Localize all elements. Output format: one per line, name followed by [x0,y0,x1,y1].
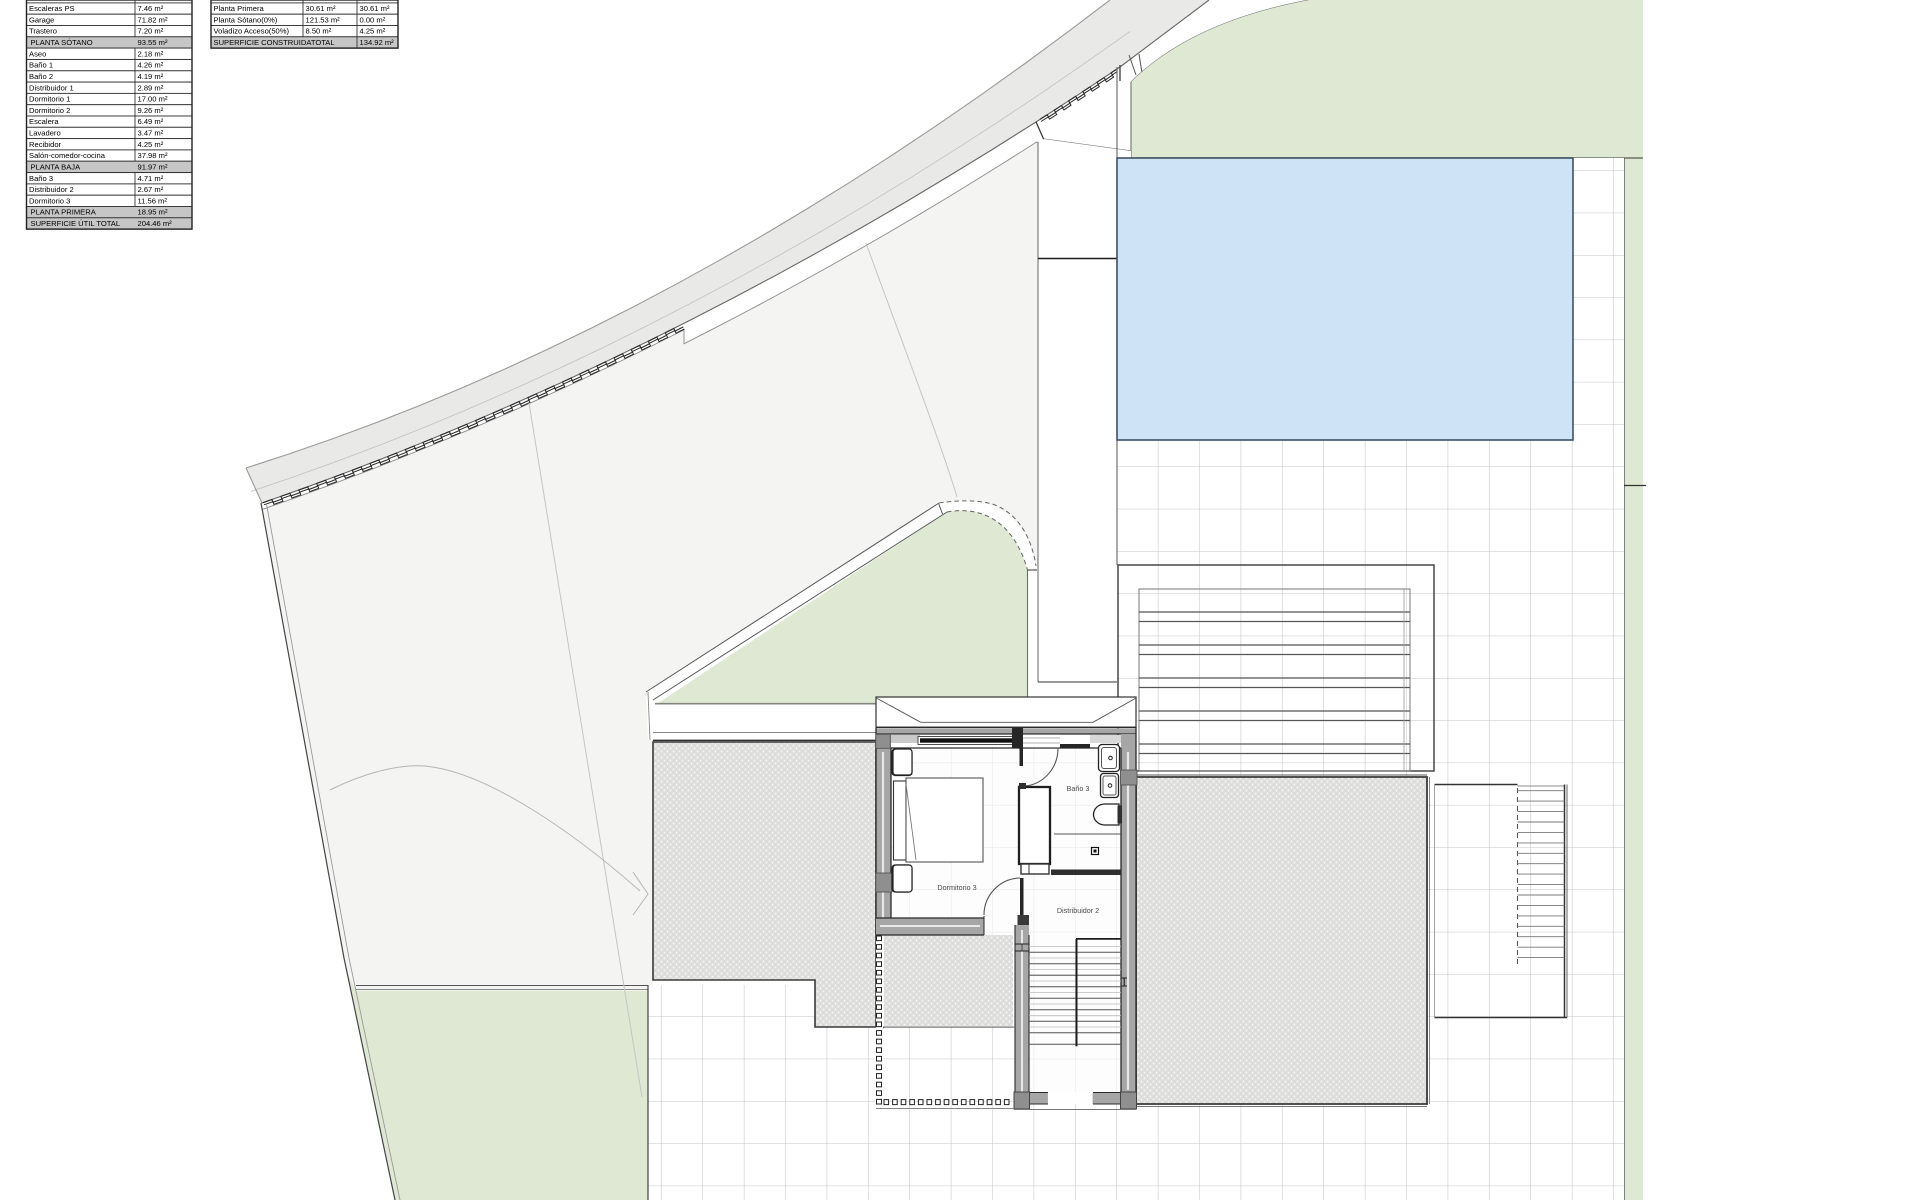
svg-text:3.47 m²: 3.47 m² [138,129,164,138]
svg-text:2.18 m²: 2.18 m² [138,49,164,58]
svg-text:30.61 m²: 30.61 m² [360,4,390,13]
svg-text:91.97 m²: 91.97 m² [138,163,168,172]
svg-text:2.89 m²: 2.89 m² [138,83,164,92]
svg-text:Dormitorio 1: Dormitorio 1 [29,95,70,104]
svg-text:Voladizo Acceso(50%): Voladizo Acceso(50%) [214,27,290,36]
svg-text:SUPERFICIE ÚTIL TOTAL: SUPERFICIE ÚTIL TOTAL [31,219,121,228]
svg-text:4.71 m²: 4.71 m² [138,174,164,183]
svg-text:Baño 2: Baño 2 [29,72,53,81]
svg-text:121.53 m²: 121.53 m² [306,15,341,24]
svg-text:Baño 1: Baño 1 [29,61,53,70]
svg-text:17.00 m²: 17.00 m² [138,95,168,104]
svg-text:30.61 m²: 30.61 m² [306,4,336,13]
svg-text:SUPERFICIE CONSTRUIDATOTAL: SUPERFICIE CONSTRUIDATOTAL [214,38,335,47]
svg-text:4.26 m²: 4.26 m² [138,61,164,70]
svg-text:Trastero: Trastero [29,27,57,36]
svg-text:Escalera: Escalera [29,117,59,126]
svg-text:Recibidor: Recibidor [29,140,62,149]
svg-text:7.20 m²: 7.20 m² [138,27,164,36]
svg-text:2.67 m²: 2.67 m² [138,185,164,194]
svg-text:PLANTA SÓTANO: PLANTA SÓTANO [31,38,93,47]
svg-text:4.25 m²: 4.25 m² [360,27,386,36]
svg-text:PLANTA PRIMERA: PLANTA PRIMERA [31,208,97,217]
svg-text:Dormitorio 3: Dormitorio 3 [29,196,70,205]
svg-text:204.46 m²: 204.46 m² [138,219,173,228]
svg-text:Baño 3: Baño 3 [1067,784,1090,793]
svg-text:0.00 m²: 0.00 m² [360,15,386,24]
svg-text:Dormitorio 3: Dormitorio 3 [937,883,976,892]
svg-text:Planta Sótano(0%): Planta Sótano(0%) [214,15,278,24]
svg-text:Lavadero: Lavadero [29,129,61,138]
svg-text:8.50 m²: 8.50 m² [306,27,332,36]
svg-text:11.56 m²: 11.56 m² [138,196,168,205]
svg-text:Aseo: Aseo [29,49,46,58]
svg-text:Escaleras PS: Escaleras PS [29,4,75,13]
svg-text:Baño 3: Baño 3 [29,174,53,183]
svg-text:9.26 m²: 9.26 m² [138,106,164,115]
svg-text:7.46 m²: 7.46 m² [138,4,164,13]
svg-text:93.55 m²: 93.55 m² [138,38,168,47]
svg-text:Garage: Garage [29,15,54,24]
svg-text:Distribuidor 1: Distribuidor 1 [29,83,74,92]
svg-text:71.82 m²: 71.82 m² [138,15,168,24]
svg-text:PLANTA BAJA: PLANTA BAJA [31,163,82,172]
svg-text:4.25 m²: 4.25 m² [138,140,164,149]
svg-text:134.92 m²: 134.92 m² [360,38,395,47]
svg-text:Distribuidor 2: Distribuidor 2 [1057,906,1099,915]
svg-text:4.19 m²: 4.19 m² [138,72,164,81]
svg-text:Distribuidor 2: Distribuidor 2 [29,185,74,194]
svg-text:37.98 m²: 37.98 m² [138,151,168,160]
svg-text:Dormitorio 2: Dormitorio 2 [29,106,70,115]
svg-text:Planta Primera: Planta Primera [214,4,265,13]
svg-text:6.49 m²: 6.49 m² [138,117,164,126]
svg-text:18.95 m²: 18.95 m² [138,208,168,217]
svg-text:Salón-comedor-cocina: Salón-comedor-cocina [29,151,106,160]
